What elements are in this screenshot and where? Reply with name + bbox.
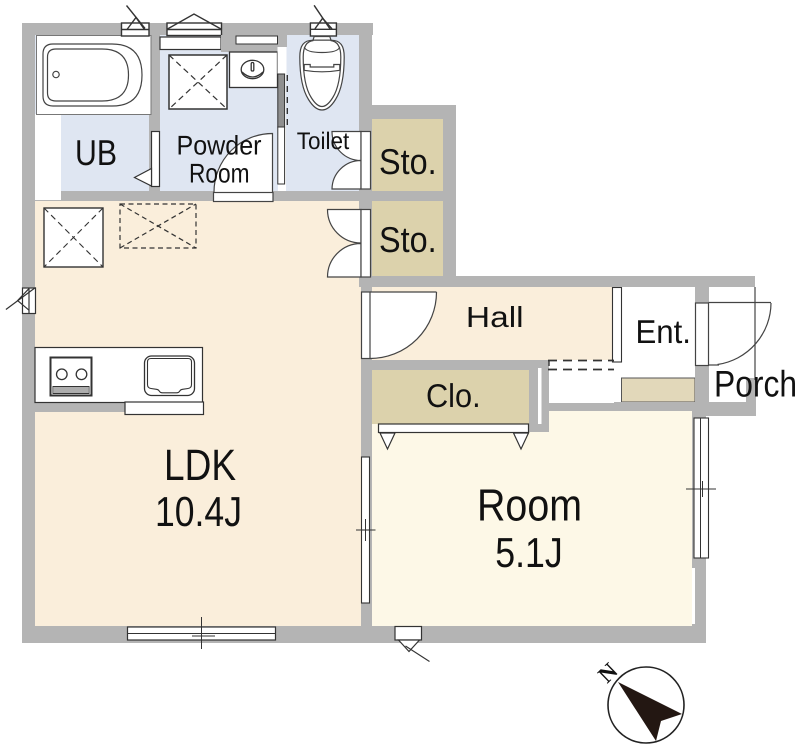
svg-text:Powder: Powder <box>177 131 262 161</box>
svg-text:10.4J: 10.4J <box>155 488 242 535</box>
svg-text:Room: Room <box>189 159 250 189</box>
svg-text:5.1J: 5.1J <box>495 529 563 576</box>
svg-text:Hall: Hall <box>466 302 524 334</box>
svg-text:UB: UB <box>75 132 117 173</box>
svg-text:Sto.: Sto. <box>379 141 437 182</box>
svg-text:Clo.: Clo. <box>426 377 481 414</box>
svg-text:Sto.: Sto. <box>379 219 437 260</box>
svg-text:LDK: LDK <box>164 441 236 490</box>
svg-text:Porch: Porch <box>714 364 797 405</box>
svg-text:Ent.: Ent. <box>635 313 691 350</box>
svg-text:Toilet: Toilet <box>297 128 350 155</box>
svg-text:Room: Room <box>477 480 582 531</box>
